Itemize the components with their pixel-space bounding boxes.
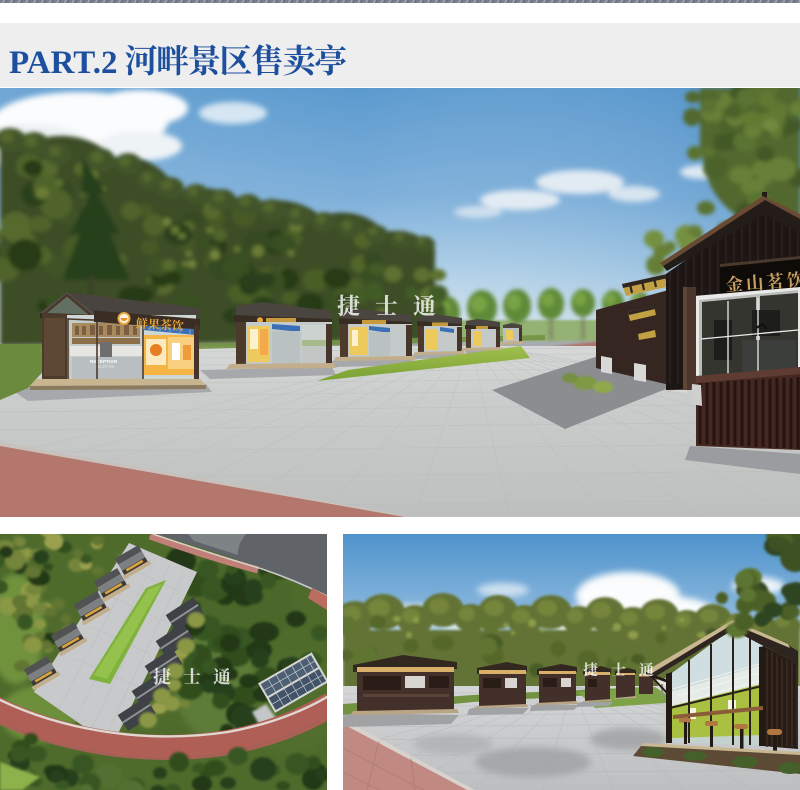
svg-text:RECEPTION: RECEPTION (96, 365, 115, 369)
svg-text:RECEPTION: RECEPTION (90, 359, 117, 364)
svg-text:PART.2: PART.2 (9, 45, 118, 81)
